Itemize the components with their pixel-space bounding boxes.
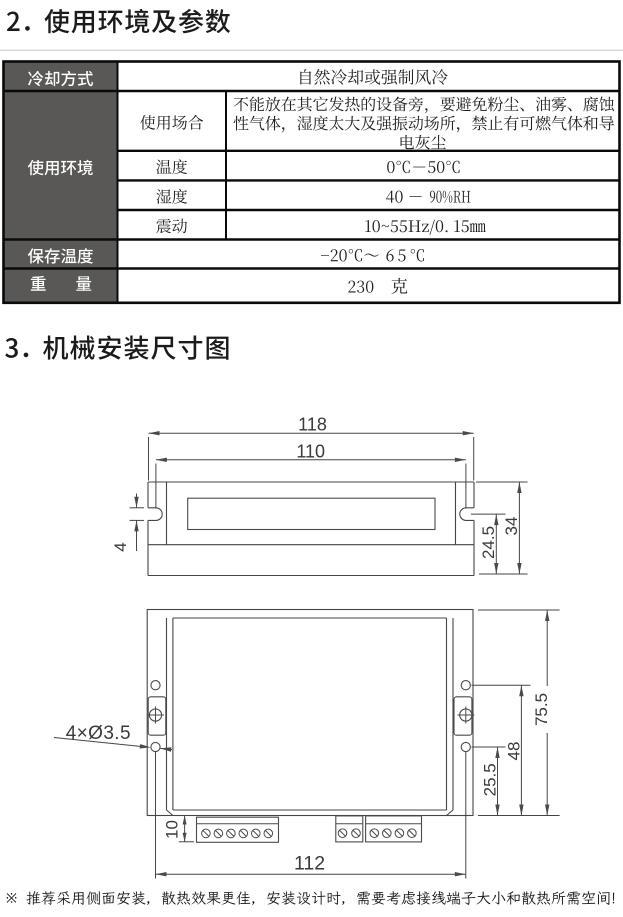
svg-text:48: 48 <box>504 742 523 761</box>
svg-text:10: 10 <box>163 820 182 839</box>
svg-text:75.5: 75.5 <box>532 693 551 726</box>
svg-text:4: 4 <box>111 542 130 551</box>
svg-text:110: 110 <box>296 441 325 461</box>
svg-text:34: 34 <box>502 517 521 536</box>
svg-text:25.5: 25.5 <box>481 763 500 796</box>
svg-text:4×Ø3.5: 4×Ø3.5 <box>66 723 131 744</box>
svg-text:112: 112 <box>294 853 325 875</box>
svg-text:24.5: 24.5 <box>479 526 498 559</box>
svg-text:118: 118 <box>298 415 327 435</box>
